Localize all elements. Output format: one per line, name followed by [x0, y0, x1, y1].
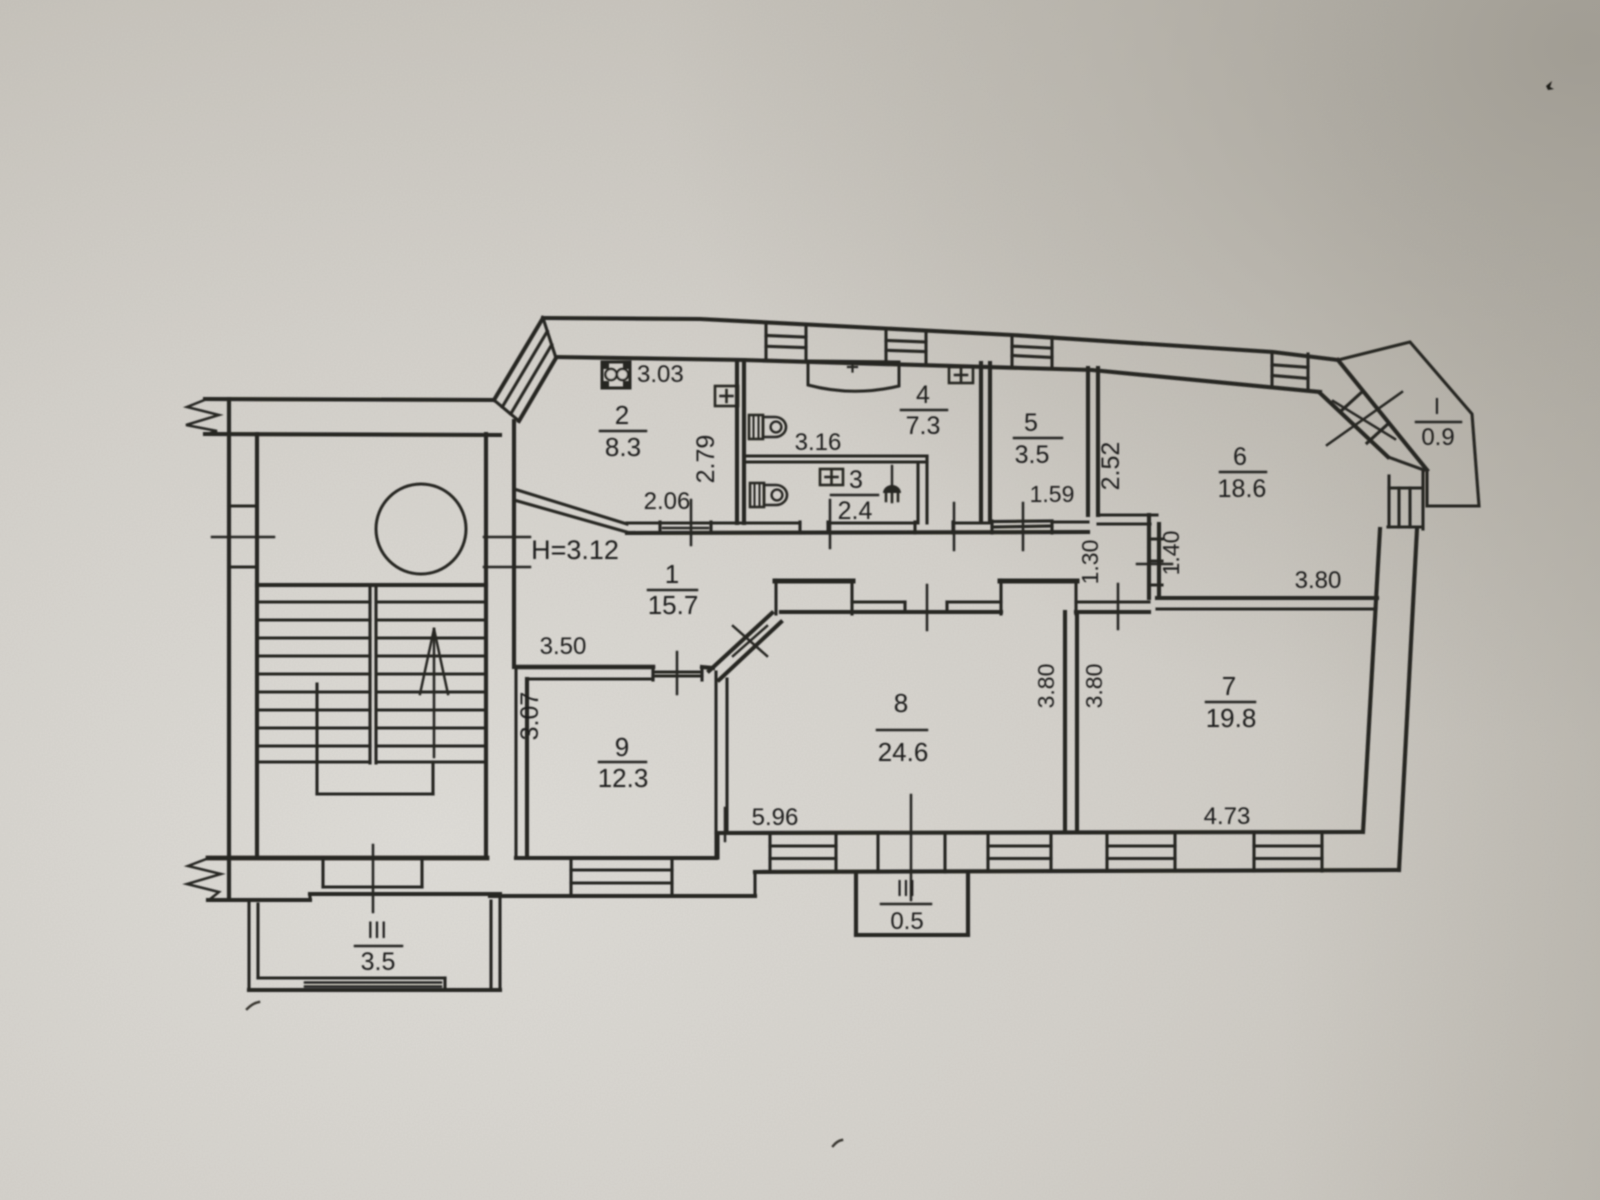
svg-text:24.6: 24.6: [878, 737, 929, 767]
svg-text:7: 7: [1222, 671, 1236, 701]
svg-text:3.5: 3.5: [361, 948, 396, 976]
svg-text:3.07: 3.07: [516, 692, 544, 741]
svg-text:18.6: 18.6: [1218, 475, 1267, 503]
svg-text:15.7: 15.7: [648, 590, 699, 620]
svg-text:I: I: [1434, 393, 1440, 419]
svg-text:2.79: 2.79: [692, 435, 720, 484]
svg-text:3.16: 3.16: [795, 429, 842, 456]
svg-text:3: 3: [849, 466, 863, 494]
svg-text:9: 9: [615, 732, 629, 762]
svg-text:III: III: [896, 875, 915, 901]
svg-text:3.80: 3.80: [1295, 567, 1342, 594]
svg-text:3.80: 3.80: [1033, 664, 1059, 709]
svg-text:7.3: 7.3: [906, 412, 941, 440]
svg-text:6: 6: [1233, 443, 1247, 471]
svg-text:3.50: 3.50: [540, 633, 587, 660]
svg-text:12.3: 12.3: [598, 763, 649, 793]
svg-text:1.59: 1.59: [1030, 481, 1075, 507]
svg-text:3.5: 3.5: [1015, 441, 1050, 469]
svg-text:H=3.12: H=3.12: [531, 535, 619, 565]
svg-text:2.52: 2.52: [1097, 442, 1125, 491]
svg-text:8: 8: [894, 688, 908, 718]
svg-text:III: III: [367, 917, 387, 944]
svg-text:3.03: 3.03: [637, 361, 684, 388]
svg-text:1: 1: [665, 559, 679, 589]
svg-text:1.30: 1.30: [1077, 540, 1103, 585]
svg-text:0.9: 0.9: [1421, 424, 1454, 451]
svg-text:8.3: 8.3: [605, 432, 641, 462]
svg-text:3.80: 3.80: [1081, 664, 1107, 709]
svg-text:4: 4: [916, 381, 930, 409]
svg-text:19.8: 19.8: [1206, 703, 1257, 733]
svg-text:1.40: 1.40: [1158, 531, 1184, 576]
svg-text:2.4: 2.4: [838, 497, 873, 525]
svg-text:2.06: 2.06: [644, 488, 691, 515]
svg-text:0.5: 0.5: [890, 908, 923, 935]
svg-text:2: 2: [615, 400, 629, 430]
svg-text:4.73: 4.73: [1204, 803, 1251, 830]
svg-text:5: 5: [1024, 409, 1038, 437]
svg-text:5.96: 5.96: [752, 804, 799, 831]
